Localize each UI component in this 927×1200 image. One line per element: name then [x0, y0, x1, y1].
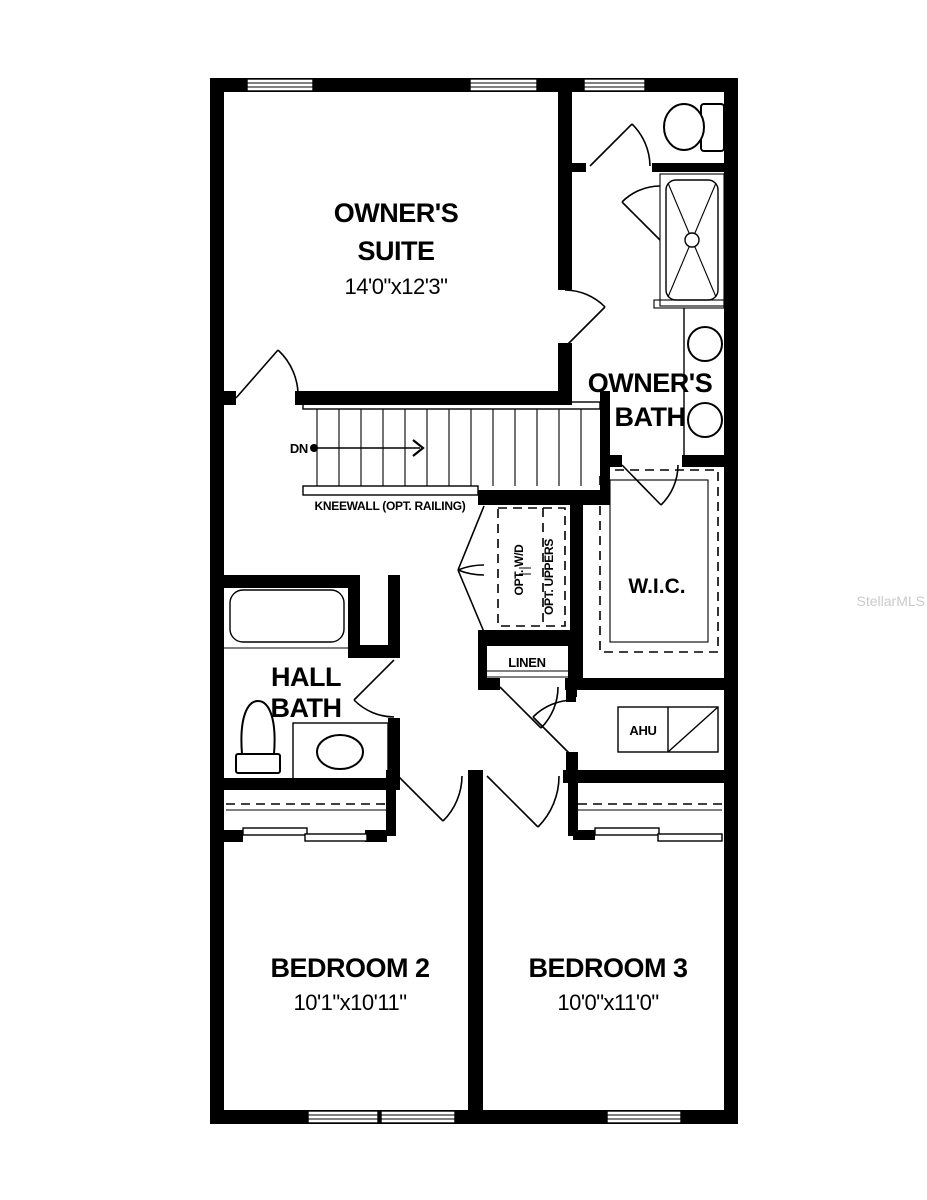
- door-bedroom3: [487, 776, 559, 827]
- room-wic: W.I.C.: [628, 575, 685, 598]
- owners-bath-label-2: BATH: [615, 402, 686, 432]
- mls-watermark: StellarMLS: [857, 593, 925, 609]
- window-bedroom2-a: [308, 1111, 378, 1123]
- room-hall-bath: HALL BATH: [271, 662, 342, 723]
- door-laundry-bifold: [458, 506, 484, 632]
- sink-fixture: [317, 735, 363, 769]
- window-bedroom3: [607, 1111, 681, 1123]
- bedroom3-closet: [578, 804, 722, 841]
- owners-suite-dims: 14'0"x12'3": [345, 274, 448, 299]
- ahu-label: AHU: [629, 723, 656, 738]
- hall-bath-vanity: [293, 723, 388, 780]
- door-hallway: [500, 687, 558, 728]
- window-top-3: [584, 79, 645, 91]
- window-bedroom2-b: [381, 1111, 455, 1123]
- bedroom3-dims: 10'0"x11'0": [557, 990, 658, 1015]
- stair-down-arrow: [310, 440, 423, 456]
- hall-bath-label-2: BATH: [271, 693, 342, 723]
- linen-closet: [487, 671, 568, 677]
- owners-suite-label-1: OWNER'S: [334, 198, 458, 228]
- stairs-dn-label: DN: [290, 441, 308, 456]
- sink-fixture: [688, 403, 722, 437]
- window-top-1: [247, 79, 313, 91]
- opt-wd-label: OPT. W/D: [512, 544, 526, 596]
- bedroom2-dims: 10'1"x10'11": [293, 990, 406, 1015]
- door-shower: [622, 186, 660, 240]
- bedroom2-closet: [226, 804, 386, 841]
- door-owners-bath: [565, 290, 605, 347]
- bathtub-fixture: [224, 590, 348, 648]
- sink-fixture: [688, 327, 722, 361]
- door-bedroom2: [398, 776, 462, 821]
- water-closet-toilet-fixture: [664, 104, 724, 151]
- owners-suite-label-2: SUITE: [357, 236, 434, 266]
- bedroom2-label: BEDROOM 2: [270, 953, 429, 983]
- owners-bath-label-1: OWNER'S: [588, 368, 712, 398]
- floor-plan-svg: DN KNEEWALL (OPT. RAILING): [0, 0, 927, 1200]
- bedroom3-label: BEDROOM 3: [528, 953, 688, 983]
- opt-uppers-label: OPT. UPPERS: [542, 539, 556, 615]
- wic-shelving: [600, 470, 718, 652]
- floor-plan-page: DN KNEEWALL (OPT. RAILING): [0, 0, 927, 1200]
- shower-fixture: [654, 174, 724, 308]
- hall-bath-label-1: HALL: [271, 662, 341, 692]
- linen-label: LINEN: [508, 655, 546, 670]
- kneewall-label: KNEEWALL (OPT. RAILING): [315, 499, 466, 513]
- room-owners-suite: OWNER'S SUITE 14'0"x12'3": [334, 198, 458, 299]
- door-owners-suite: [236, 350, 298, 398]
- wic-label: W.I.C.: [628, 575, 685, 598]
- window-top-2: [470, 79, 537, 91]
- room-bedroom3: BEDROOM 3 10'0"x11'0": [528, 953, 688, 1015]
- room-bedroom2: BEDROOM 2 10'1"x10'11": [270, 953, 429, 1015]
- door-wic: [622, 465, 678, 505]
- door-water-closet: [590, 124, 650, 166]
- door-hall-bath: [354, 660, 394, 717]
